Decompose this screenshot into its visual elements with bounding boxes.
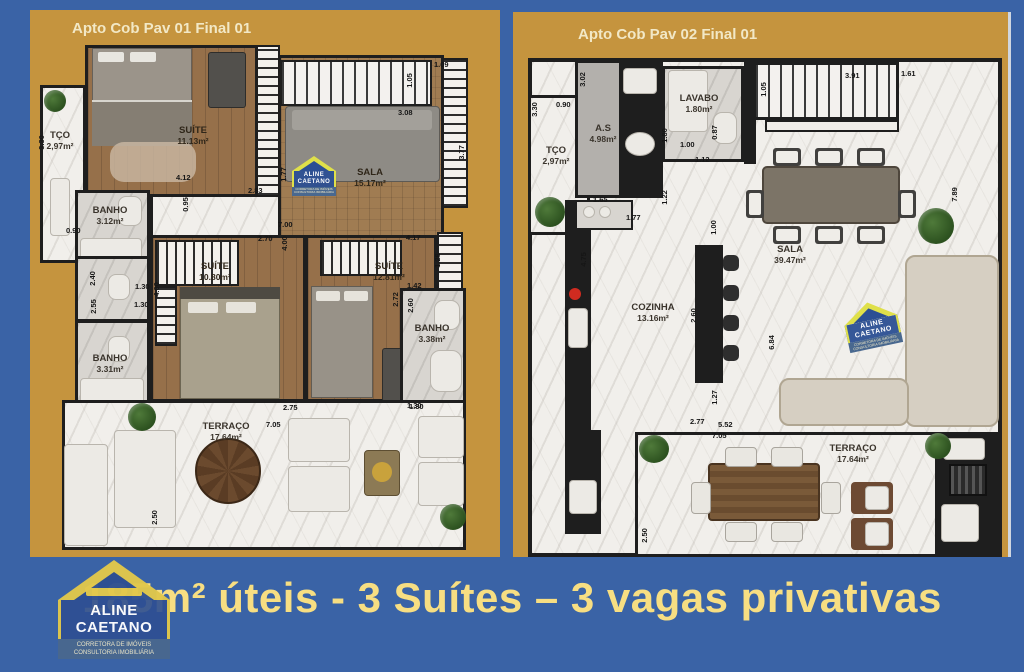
plan-panel-2: Apto Cob Pav 02 Final 01 TÇO 2,97m² A.S …	[513, 12, 1010, 557]
logo-sub2: CONSULTORIA IMOBILIÁRIA	[58, 649, 170, 657]
room-area: 3.38m²	[400, 335, 464, 345]
badge-body: ALINE CAETANO	[292, 171, 336, 187]
dim-label: 2.55	[89, 299, 98, 314]
dim-label: 1.00	[709, 220, 718, 235]
dim-label: 4.00	[280, 236, 289, 251]
plant-icon	[918, 208, 954, 244]
dim-label: 0.90	[556, 100, 571, 109]
logo-roof-band	[86, 588, 142, 596]
logo-sub1: CORRETORA DE IMÓVEIS	[58, 641, 170, 649]
dim-label: 7.05	[712, 431, 727, 440]
dim-label: 6.84	[767, 335, 776, 350]
room-label-banho-312: BANHO 3.12m²	[78, 206, 142, 227]
room-label-suite-1080: SUÍTE 10.80m²	[170, 262, 260, 283]
aline-caetano-badge: ALINE CAETANO CORRETORA DE IMÓVEIS CONSU…	[292, 156, 336, 196]
outdoor-chair	[771, 447, 803, 467]
gold-bowl	[372, 462, 392, 482]
armchair	[288, 418, 350, 462]
bar-stool	[723, 285, 739, 301]
room-label-banho-331: BANHO 3.31m²	[78, 354, 142, 375]
logo-body: ALINE CAETANO	[58, 600, 170, 639]
dim-label: 1.00	[680, 140, 695, 149]
dim-label: 1.09	[434, 60, 449, 69]
room-label-lavabo: LAVABO 1.80m²	[665, 94, 733, 115]
dim-label: 1.12	[695, 155, 710, 164]
dim-label: 0.87	[710, 125, 719, 140]
dim-label: 0.90	[66, 226, 81, 235]
room-area: 39.47m²	[748, 256, 832, 266]
dining-chair	[815, 148, 843, 166]
sink	[430, 350, 462, 392]
dim-label: 2.50	[640, 528, 649, 543]
dining-chair	[898, 190, 916, 218]
sofa	[905, 255, 999, 427]
dining-chair	[815, 226, 843, 244]
dining-table	[762, 166, 900, 224]
badge-line1: ALINE	[294, 172, 334, 179]
toilet	[108, 274, 130, 300]
bar-stool	[723, 345, 739, 361]
fridge	[568, 308, 588, 348]
dim-label: 1.05	[759, 82, 768, 97]
room-area: 11.13m²	[150, 137, 236, 147]
dim-label: 1.30	[409, 402, 424, 411]
dim-label: 1.65	[593, 195, 608, 204]
logo-strip: CORRETORA DE IMÓVEIS CONSULTORIA IMOBILI…	[58, 639, 170, 659]
sink	[599, 206, 611, 218]
plant-icon	[440, 504, 466, 530]
dim-label: 2.60	[406, 298, 415, 313]
bed-pillow	[316, 291, 340, 301]
dining-chair	[857, 226, 885, 244]
room-label-sala-2: SALA 39.47m²	[748, 245, 832, 266]
logo-line2: CAETANO	[61, 619, 167, 636]
bed-pillow	[130, 52, 156, 62]
dim-label: 1.77	[279, 167, 288, 182]
dim-label: 3.77	[457, 145, 466, 160]
bed-pillow	[344, 291, 368, 301]
plan-panel-1: Apto Cob Pav 01 Final 01 TÇO 2,97m² SUÍT…	[30, 10, 500, 557]
dim-label: 1.28	[433, 253, 442, 268]
logo-line1: ALINE	[61, 602, 167, 619]
dining-chair	[857, 148, 885, 166]
room-area: 17.64m²	[178, 433, 274, 443]
dim-label: 2.40	[88, 271, 97, 286]
dim-label: 1.80	[660, 128, 669, 143]
armchair	[208, 52, 246, 108]
plant-icon	[128, 403, 156, 431]
dim-label: 1.30	[134, 300, 149, 309]
dim-label: 7.00	[278, 220, 293, 229]
lounge-cushion	[865, 486, 889, 510]
badge-line2: CAETANO	[294, 179, 334, 186]
room-area: 1.80m²	[665, 105, 733, 115]
dim-label: 1.42	[407, 281, 422, 290]
bed-headboard	[180, 287, 280, 299]
bar-stool	[723, 255, 739, 271]
dim-label: 4.00	[152, 282, 161, 297]
kitchen-island	[695, 245, 723, 383]
armchair	[418, 462, 464, 506]
dim-label: 1.05	[405, 73, 414, 88]
dim-label: 3.91	[845, 71, 860, 80]
dim-label: 2.72	[391, 292, 400, 307]
room-area: 3.31m²	[78, 365, 142, 375]
room-label-cozinha: COZINHA 13.16m²	[621, 303, 685, 324]
dim-label: 1.27	[710, 390, 719, 405]
room-label-terraco-2: TERRAÇO 17.64m²	[813, 444, 893, 465]
dim-label: 2.60	[689, 308, 698, 323]
dim-label: 7.05	[266, 420, 281, 429]
dim-label: 1.77	[626, 213, 641, 222]
plan-1-title: Apto Cob Pav 01 Final 01	[72, 20, 251, 37]
outdoor-chair	[725, 447, 757, 467]
room-label-as: A.S 4.98m²	[573, 124, 633, 145]
grill	[949, 464, 987, 496]
dim-label: 7.89	[950, 187, 959, 202]
sink	[583, 206, 595, 218]
round-table	[195, 438, 261, 504]
badge-roof	[292, 156, 336, 171]
room-area: 3.12m²	[78, 217, 142, 227]
dining-chair	[746, 190, 764, 218]
bed-pillow	[188, 302, 218, 313]
dim-label: 3.30	[530, 102, 539, 117]
washing-machine	[623, 68, 657, 94]
dim-label: 1.22	[660, 190, 669, 205]
room-label-sala: SALA 15.17m²	[330, 168, 410, 189]
wardrobe	[442, 58, 468, 208]
aline-caetano-logo: ALINE CAETANO CORRETORA DE IMÓVEIS CONSU…	[58, 560, 170, 659]
room-label-banho-338: BANHO 3.38m²	[400, 324, 464, 345]
sofa	[64, 444, 108, 546]
stairs	[753, 62, 899, 120]
room-label-terraco-1: TERRAÇO 17.64m²	[178, 422, 274, 443]
lounge-cushion	[865, 522, 889, 546]
badge-sub2: CONSULTORIA IMOBILIÁRIA	[292, 191, 336, 195]
outdoor-table	[708, 463, 820, 521]
plan-2-title: Apto Cob Pav 02 Final 01	[578, 26, 757, 43]
stairs-landing	[765, 120, 899, 132]
outdoor-chair	[821, 482, 841, 514]
dim-label: 5.52	[718, 420, 733, 429]
dim-label: 4.75	[579, 252, 588, 267]
logo-roof	[58, 560, 170, 600]
dim-label: 3.30	[37, 135, 46, 150]
dim-label: 3.08	[398, 108, 413, 117]
room-label-suite-1281: SUÍTE 12.81m²	[346, 262, 432, 283]
dim-label: 0.95	[181, 197, 190, 212]
sofa-chaise	[779, 378, 909, 426]
room-area: 10.80m²	[170, 273, 260, 283]
cabinet	[941, 504, 979, 542]
sofa	[114, 430, 176, 528]
flyer: Apto Cob Pav 01 Final 01 TÇO 2,97m² SUÍT…	[0, 0, 1024, 672]
room-area: 13.16m²	[621, 314, 685, 324]
plant-icon	[44, 90, 66, 112]
plant-icon	[925, 433, 951, 459]
fire-extinguisher	[569, 288, 581, 300]
dim-label: 1.30	[135, 282, 150, 291]
dim-label: 2.70	[258, 234, 273, 243]
outdoor-chair	[771, 522, 803, 542]
outdoor-chair	[725, 522, 757, 542]
dining-chair	[773, 226, 801, 244]
dim-label: 3.02	[578, 72, 587, 87]
room-area: 15.17m²	[330, 179, 410, 189]
dim-label: 2.50	[150, 510, 159, 525]
room-area: 17.64m²	[813, 455, 893, 465]
dim-label: 2.77	[690, 417, 705, 426]
armchair	[418, 416, 464, 458]
dim-label: 2.83	[248, 186, 263, 195]
room-label-tco-2: TÇO 2,97m²	[528, 146, 584, 167]
dim-label: 4.12	[176, 173, 191, 182]
dining-chair	[773, 148, 801, 166]
room-area: 2,97m²	[528, 157, 584, 167]
plant-icon	[535, 197, 565, 227]
armchair	[288, 466, 350, 512]
dim-label: 2.75	[283, 403, 298, 412]
room-area: 4.98m²	[573, 135, 633, 145]
panel-edge-line	[1008, 12, 1011, 557]
dim-label: 1.61	[901, 69, 916, 78]
plant-icon	[639, 435, 669, 463]
closet	[256, 45, 280, 197]
room-label-suite-1113: SUÍTE 11.13m²	[150, 126, 236, 147]
bed-pillow	[226, 302, 256, 313]
stove	[569, 480, 597, 514]
outdoor-chair	[691, 482, 711, 514]
badge-strip: CORRETORA DE IMÓVEIS CONSULTORIA IMOBILI…	[292, 187, 336, 196]
bar-stool	[723, 315, 739, 331]
dim-label: 4.17	[406, 233, 421, 242]
bed	[311, 286, 373, 398]
bed-pillow	[98, 52, 124, 62]
